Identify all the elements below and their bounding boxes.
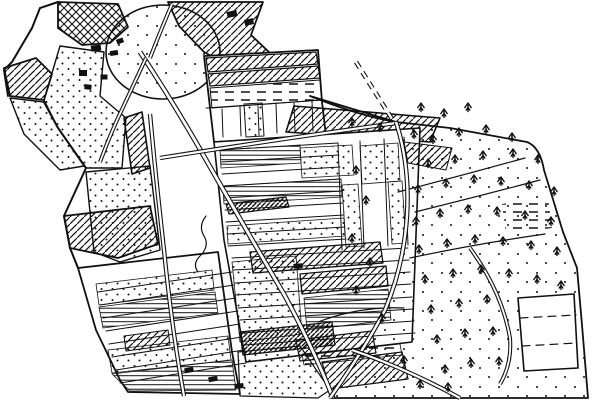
upper-dotted-col [244,103,264,137]
building [91,44,102,51]
map-canvas [0,0,600,400]
building [101,75,108,80]
tree-icon [465,103,471,112]
hatch-strip [124,112,150,174]
strips-dotted-1 [300,145,354,178]
tree-icon [483,125,489,134]
building [234,383,243,389]
dashed-parcel [518,294,578,371]
map-regions [4,2,588,398]
strips-dotted-2 [360,143,400,184]
tree-icon [441,109,447,118]
wood-dash-field [502,198,552,234]
road-dashed-casing [356,62,392,119]
road-dashed [356,62,392,119]
tree-icon [418,103,424,112]
building [79,70,87,76]
building [84,84,91,90]
building [293,263,302,269]
tree-icon [509,133,515,142]
left-parcel-hatch [4,58,52,100]
hand-drawn-map-svg [0,0,600,400]
tree-icon [551,187,557,196]
